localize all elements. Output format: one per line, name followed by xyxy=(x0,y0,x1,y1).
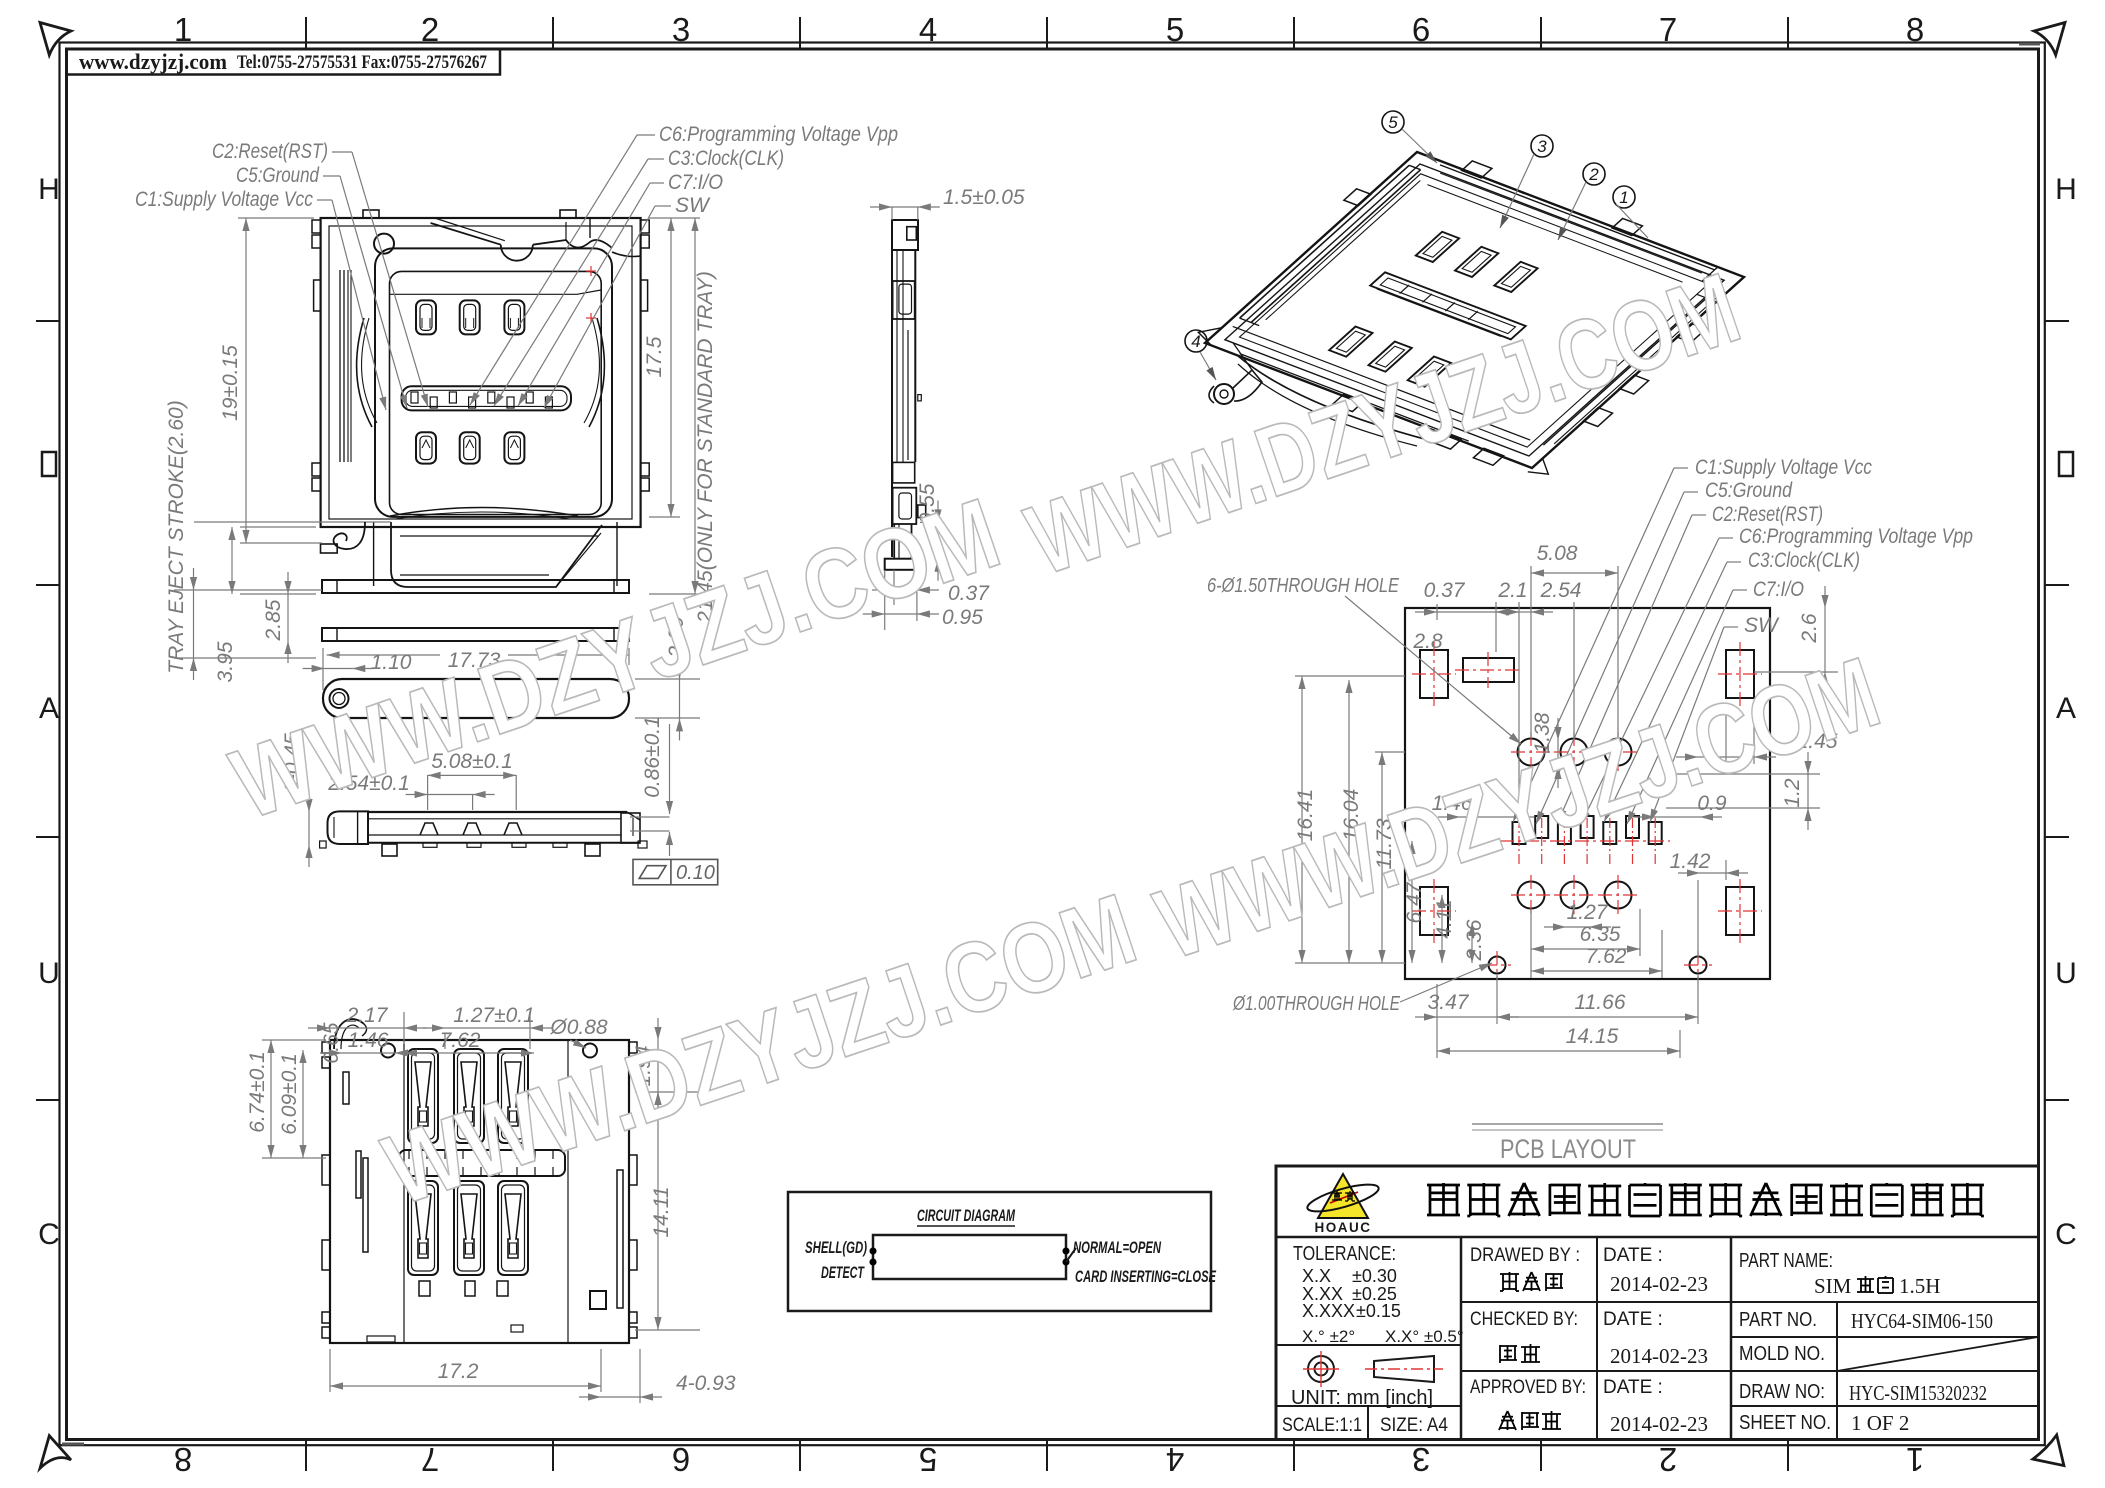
svg-text:APPROVED BY:: APPROVED BY: xyxy=(1470,1377,1586,1398)
svg-text:1.46: 1.46 xyxy=(348,1029,389,1052)
svg-text:SW: SW xyxy=(675,194,711,217)
svg-text:PART NAME:: PART NAME: xyxy=(1739,1250,1833,1272)
svg-text:3: 3 xyxy=(672,11,690,48)
svg-text:7: 7 xyxy=(421,1441,439,1478)
svg-text:PCB LAYOUT: PCB LAYOUT xyxy=(1500,1134,1636,1164)
svg-text:17.2: 17.2 xyxy=(438,1360,479,1383)
svg-text:1.5±0.05: 1.5±0.05 xyxy=(943,186,1025,209)
svg-text:4: 4 xyxy=(1166,1441,1184,1478)
svg-text:DATE :: DATE : xyxy=(1603,1245,1663,1266)
svg-text:3.95: 3.95 xyxy=(214,641,237,682)
svg-text:SW: SW xyxy=(1744,614,1780,637)
svg-text:HYC-SIM15320232: HYC-SIM15320232 xyxy=(1849,1381,1987,1405)
svg-text:DRAW NO:: DRAW NO: xyxy=(1739,1381,1825,1403)
svg-text:DATE :: DATE : xyxy=(1603,1377,1663,1398)
svg-text:C6:Programming Voltage Vpp: C6:Programming Voltage Vpp xyxy=(659,123,898,146)
svg-text:±0.15: ±0.15 xyxy=(1356,1301,1401,1321)
svg-text:C1:Supply Voltage Vcc: C1:Supply Voltage Vcc xyxy=(135,188,313,211)
svg-text:2.1: 2.1 xyxy=(1497,579,1527,602)
svg-text:0.86±0.1: 0.86±0.1 xyxy=(641,716,664,798)
svg-text:DETECT: DETECT xyxy=(821,1263,865,1282)
svg-text:C: C xyxy=(38,1218,60,1251)
svg-text:1.27: 1.27 xyxy=(1567,901,1609,924)
svg-text:2.36: 2.36 xyxy=(1463,919,1486,961)
svg-text:CIRCUIT DIAGRAM: CIRCUIT DIAGRAM xyxy=(917,1206,1016,1225)
svg-text:U: U xyxy=(38,957,60,990)
svg-text:SIM: SIM xyxy=(1814,1274,1852,1298)
svg-text:7.62: 7.62 xyxy=(440,1029,481,1052)
svg-text:SHEET NO.: SHEET NO. xyxy=(1739,1412,1831,1434)
svg-text:4.11: 4.11 xyxy=(1433,899,1456,938)
svg-text:14.11: 14.11 xyxy=(650,1187,673,1238)
svg-text:5: 5 xyxy=(919,1441,937,1478)
svg-text:8: 8 xyxy=(1906,11,1924,48)
svg-text:H: H xyxy=(2055,173,2077,206)
svg-text:WWW.DZYJZJ.COM: WWW.DZYJZJ.COM xyxy=(371,873,1148,1227)
svg-text:4: 4 xyxy=(919,11,937,48)
svg-text:C: C xyxy=(2055,1218,2077,1251)
svg-text:7: 7 xyxy=(1659,11,1677,48)
svg-text:6: 6 xyxy=(672,1441,690,1478)
svg-text:TOLERANCE:: TOLERANCE: xyxy=(1293,1243,1396,1265)
svg-text:0.37: 0.37 xyxy=(1424,579,1466,602)
svg-text:2: 2 xyxy=(421,11,439,48)
svg-text:CHECKED BY:: CHECKED BY: xyxy=(1470,1309,1578,1330)
svg-text:C2:Reset(RST): C2:Reset(RST) xyxy=(212,140,328,163)
svg-text:Tel:0755-27575531 Fax:0755-27: Tel:0755-27575531 Fax:0755-27576267 xyxy=(237,52,487,73)
svg-text:C2:Reset(RST): C2:Reset(RST) xyxy=(1712,503,1823,526)
svg-text:6.35: 6.35 xyxy=(1580,923,1621,946)
svg-text:TRAY EJECT STROKE(2.60): TRAY EJECT STROKE(2.60) xyxy=(165,400,188,673)
svg-text:PART NO.: PART NO. xyxy=(1739,1309,1817,1331)
svg-text:6-Ø1.50THROUGH HOLE: 6-Ø1.50THROUGH HOLE xyxy=(1207,575,1400,597)
svg-text:19±0.15: 19±0.15 xyxy=(219,345,242,421)
svg-text:SIZE: A4: SIZE: A4 xyxy=(1380,1415,1448,1436)
svg-text:H: H xyxy=(38,173,60,206)
svg-text:0.65: 0.65 xyxy=(320,1022,343,1063)
svg-text:7.62: 7.62 xyxy=(1586,945,1627,968)
svg-text:8: 8 xyxy=(174,1441,192,1478)
svg-text:SHELL(GD): SHELL(GD) xyxy=(805,1238,867,1257)
svg-text:2.6: 2.6 xyxy=(1798,613,1821,644)
svg-text:CARD INSERTING=CLOSE: CARD INSERTING=CLOSE xyxy=(1075,1267,1216,1286)
svg-text:2014-02-23: 2014-02-23 xyxy=(1610,1412,1708,1436)
svg-text:5: 5 xyxy=(1166,11,1184,48)
svg-text:C7:I/O: C7:I/O xyxy=(1753,578,1804,601)
svg-text:6.09±0.1: 6.09±0.1 xyxy=(278,1053,301,1135)
svg-text:11.66: 11.66 xyxy=(1575,991,1626,1014)
svg-text:1.42: 1.42 xyxy=(1670,850,1711,873)
svg-text:2014-02-23: 2014-02-23 xyxy=(1610,1344,1708,1368)
svg-text:A: A xyxy=(39,692,59,725)
svg-text:A: A xyxy=(2056,692,2076,725)
svg-text:17.5: 17.5 xyxy=(643,336,666,377)
svg-text:2.8: 2.8 xyxy=(1412,630,1443,653)
svg-text:Ø0.88: Ø0.88 xyxy=(549,1016,608,1039)
svg-text:C3:Clock(CLK): C3:Clock(CLK) xyxy=(1748,549,1860,572)
svg-text:6: 6 xyxy=(1412,11,1430,48)
svg-text:www.dzyjzj.com: www.dzyjzj.com xyxy=(79,49,227,74)
svg-text:5: 5 xyxy=(1388,113,1398,132)
svg-text:±0.30: ±0.30 xyxy=(1352,1266,1397,1286)
svg-text:0.95: 0.95 xyxy=(942,606,983,629)
svg-text:NORMAL=OPEN: NORMAL=OPEN xyxy=(1073,1238,1161,1257)
svg-text:WWW.DZYJZJ.COM: WWW.DZYJZJ.COM xyxy=(1014,252,1753,597)
svg-text:5.08: 5.08 xyxy=(1537,542,1578,565)
svg-text:1.2: 1.2 xyxy=(1781,778,1804,808)
svg-text:Ø1.00THROUGH HOLE: Ø1.00THROUGH HOLE xyxy=(1232,993,1400,1015)
svg-text:X.X: X.X xyxy=(1302,1266,1331,1286)
svg-text:X.XXX: X.XXX xyxy=(1302,1301,1355,1321)
svg-text:1 OF 2: 1 OF 2 xyxy=(1851,1411,1909,1435)
svg-text:2: 2 xyxy=(1588,165,1599,184)
svg-text:2.54: 2.54 xyxy=(1540,579,1582,602)
svg-text:C6:Programming Voltage Vpp: C6:Programming Voltage Vpp xyxy=(1739,525,1973,548)
svg-text:3: 3 xyxy=(1537,137,1547,156)
svg-text:1.5H: 1.5H xyxy=(1899,1274,1940,1298)
svg-text:HOAUC: HOAUC xyxy=(1315,1220,1372,1235)
svg-text:C5:Ground: C5:Ground xyxy=(1705,479,1793,502)
svg-text:SCALE:1:1: SCALE:1:1 xyxy=(1282,1415,1362,1436)
svg-text:DATE :: DATE : xyxy=(1603,1309,1663,1330)
svg-text:C1:Supply Voltage Vcc: C1:Supply Voltage Vcc xyxy=(1695,456,1872,479)
svg-text:X.° ±2°: X.° ±2° xyxy=(1302,1327,1355,1346)
svg-text:6.74±0.1: 6.74±0.1 xyxy=(246,1051,269,1133)
svg-text:UNIT: mm [inch]: UNIT: mm [inch] xyxy=(1291,1387,1433,1409)
svg-text:DRAWED BY :: DRAWED BY : xyxy=(1470,1245,1580,1266)
svg-text:3: 3 xyxy=(1412,1441,1430,1478)
svg-text:C3:Clock(CLK): C3:Clock(CLK) xyxy=(668,147,784,170)
svg-text:1: 1 xyxy=(174,11,192,48)
svg-text:4-0.93: 4-0.93 xyxy=(676,1372,736,1395)
svg-text:4: 4 xyxy=(1191,332,1200,351)
svg-text:U: U xyxy=(2055,957,2077,990)
svg-text:C7:I/O: C7:I/O xyxy=(668,171,723,194)
svg-text:HYC64-SIM06-150: HYC64-SIM06-150 xyxy=(1851,1309,1993,1333)
svg-text:MOLD NO.: MOLD NO. xyxy=(1739,1343,1825,1365)
svg-text:1: 1 xyxy=(1906,1441,1924,1478)
svg-text:2.85: 2.85 xyxy=(262,599,285,641)
svg-text:14.15: 14.15 xyxy=(1566,1025,1619,1048)
svg-text:1.27±0.1: 1.27±0.1 xyxy=(453,1004,535,1027)
svg-text:WWW.DZYJZJ.COM: WWW.DZYJZJ.COM xyxy=(219,477,1012,841)
svg-text:X.X° ±0.5°: X.X° ±0.5° xyxy=(1385,1327,1464,1346)
svg-text:2014-02-23: 2014-02-23 xyxy=(1610,1272,1708,1296)
svg-text:0.10: 0.10 xyxy=(676,862,715,884)
svg-text:C5:Ground: C5:Ground xyxy=(236,164,320,187)
svg-text:2.17: 2.17 xyxy=(346,1004,389,1027)
svg-text:2: 2 xyxy=(1659,1441,1677,1478)
svg-text:3.47: 3.47 xyxy=(1428,991,1470,1014)
svg-text:1: 1 xyxy=(1619,188,1628,207)
